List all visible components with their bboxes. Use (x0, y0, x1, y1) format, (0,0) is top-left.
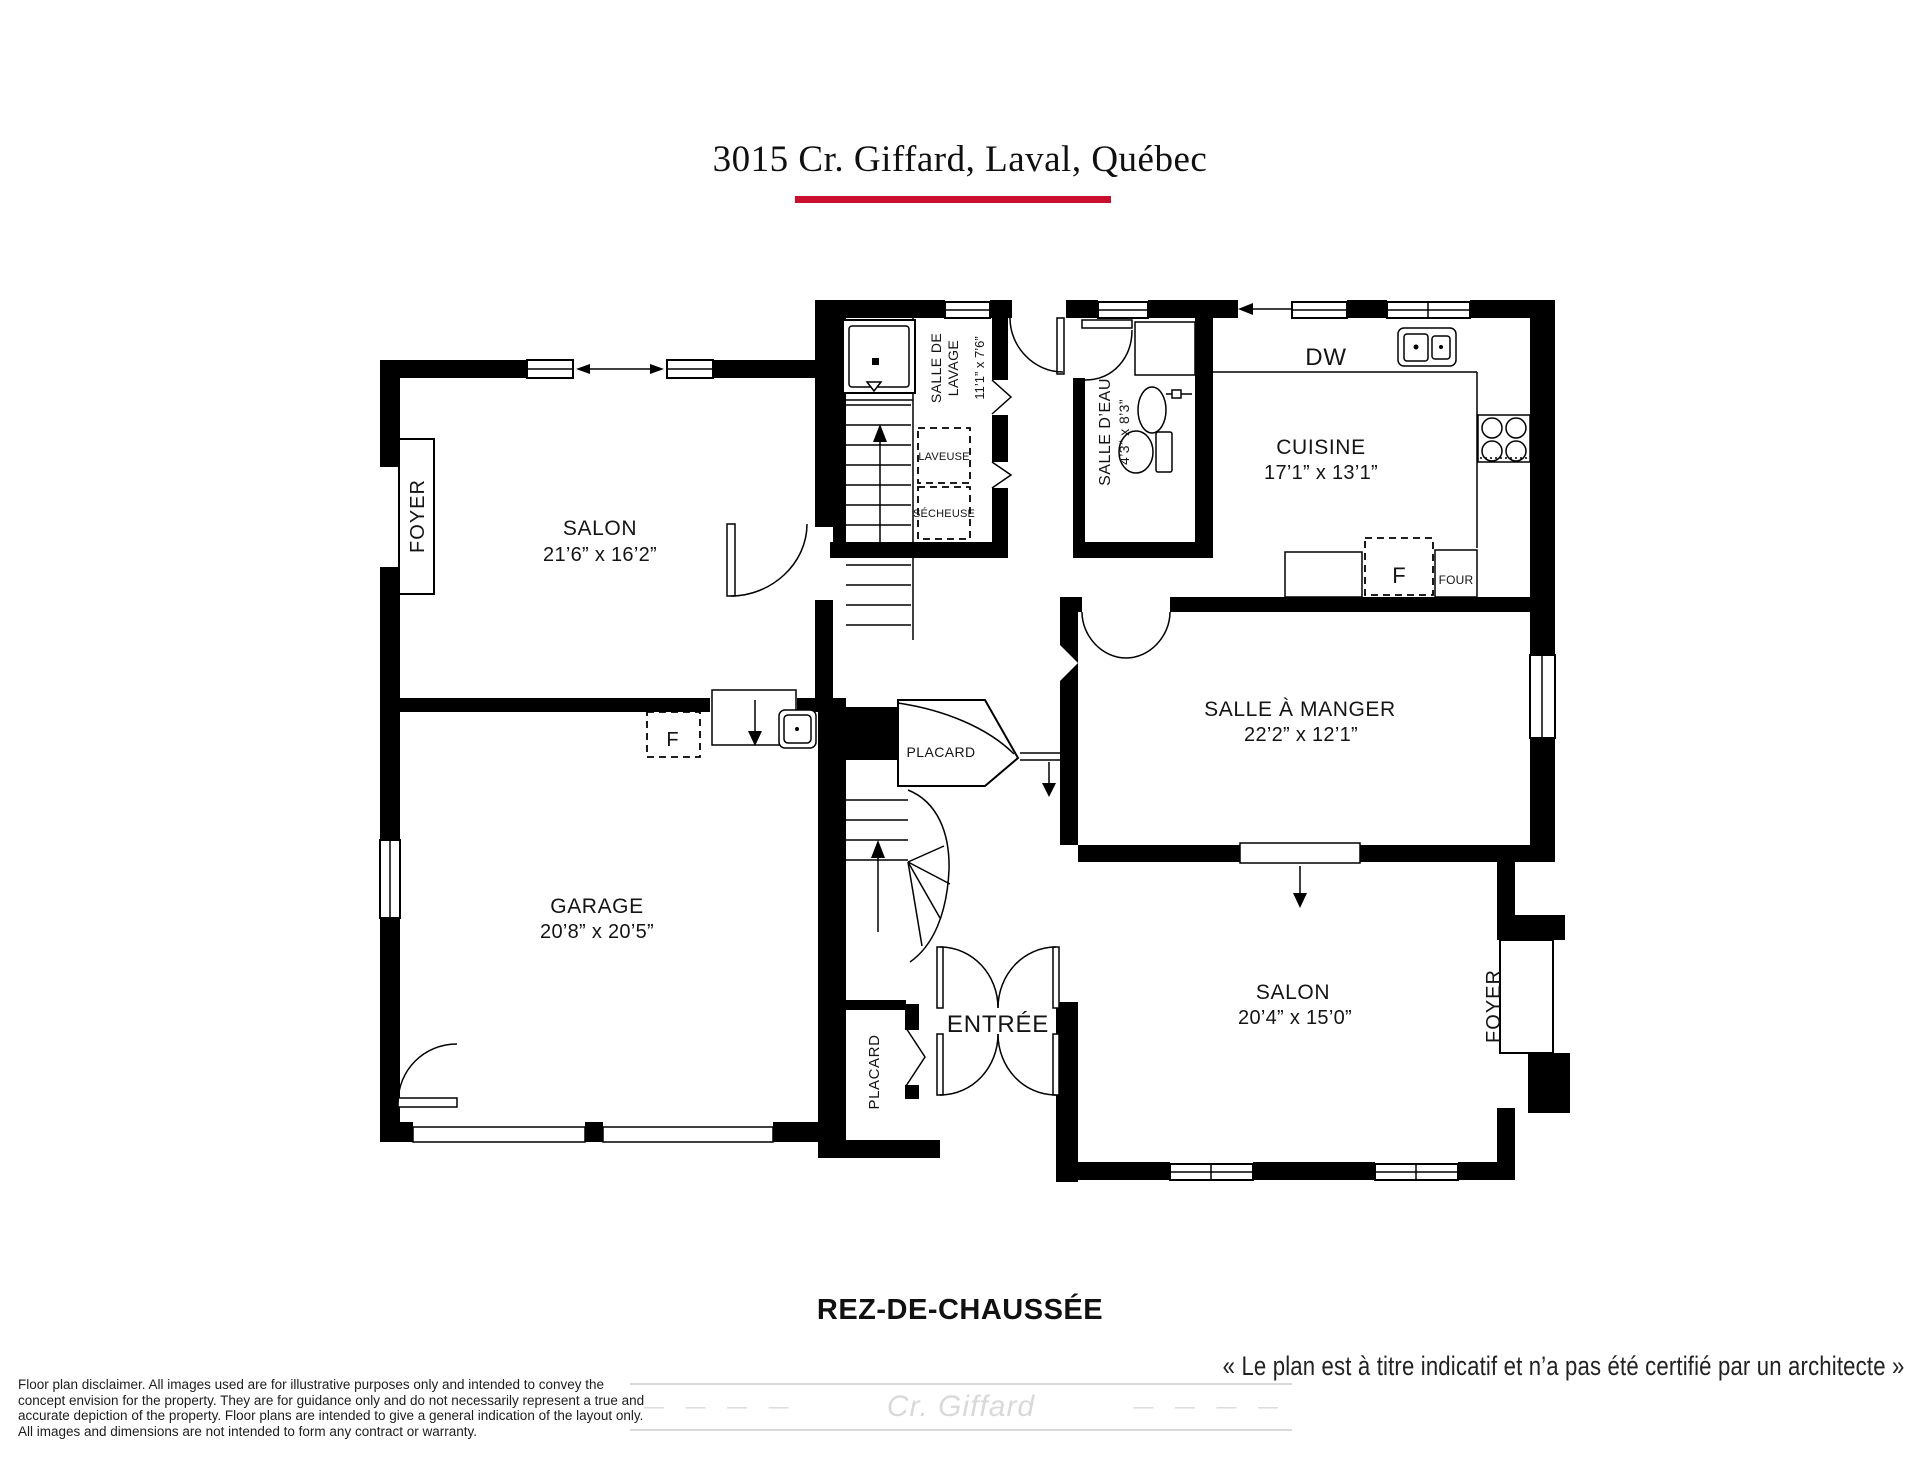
window (527, 360, 573, 378)
closet-bifold-hall (898, 700, 1018, 786)
watermark-dashes-right: — — — — (1119, 1396, 1292, 1419)
window (380, 840, 400, 918)
oven-label: FOUR (1439, 573, 1474, 587)
floor-plan-drawing: SALON 21’6” x 16’2” CUISINE 17’1” x 13’1… (0, 0, 1920, 1483)
kitchen-sink-icon (1398, 328, 1456, 366)
room-dims-salle-deau: 4’3” x 8’3” (1116, 399, 1132, 465)
disclaimer-line: accurate depiction of the property. Floo… (18, 1408, 658, 1424)
dining-salon-arrow (1293, 866, 1307, 908)
watermark-band: — — — — Cr. Giffard — — — — (630, 1383, 1292, 1431)
dryer-label: SÉCHEUSE (913, 507, 975, 520)
room-label-cuisine: CUISINE (1276, 436, 1365, 459)
watermark-text: Cr. Giffard (887, 1390, 1035, 1424)
disclaimer-line: concept envision for the property. They … (18, 1393, 658, 1409)
disclaimer-line: Floor plan disclaimer. All images used a… (18, 1377, 658, 1393)
laundry-tub-icon (779, 710, 816, 748)
room-dims-garage: 20’8” x 20’5” (540, 921, 654, 943)
room-dims-salon-haut: 21’6” x 16’2” (543, 544, 657, 566)
room-label-salon-bas: SALON (1256, 981, 1330, 1004)
floor-level-label: REZ-DE-CHAUSSÉE (0, 1294, 1920, 1327)
shower-icon (843, 320, 915, 393)
window (1387, 302, 1470, 318)
door-opening-laundry-1 (992, 380, 1011, 414)
window (1170, 1164, 1253, 1180)
door-arc-garage-side (398, 1044, 457, 1107)
french-doors-entree-front (937, 1034, 1059, 1095)
room-dims-salle-a-manger: 22’2” x 12’1” (1244, 724, 1358, 746)
fixtures (399, 320, 1553, 1053)
door-arc-salle-deau (1082, 320, 1132, 380)
dishwasher-label: DW (1305, 344, 1347, 371)
staircase-basement-icon (846, 790, 950, 962)
room-label-salon-haut: SALON (563, 517, 637, 540)
freezer-label: F (666, 729, 679, 751)
refrigerator-label: F (1392, 563, 1405, 588)
room-label-salle-a-manger: SALLE À MANGER (1204, 698, 1396, 721)
window (945, 302, 990, 318)
floor-plan-disclaimer: Floor plan disclaimer. All images used a… (18, 1377, 658, 1439)
room-label-garage: GARAGE (550, 895, 643, 918)
window (1292, 302, 1347, 318)
french-doors-entree-interior (937, 947, 1059, 1008)
stove-icon (1478, 415, 1530, 462)
closet-bifold-entree (906, 1028, 925, 1086)
room-label-foyer-droit: FOYER (1483, 969, 1505, 1043)
window (1098, 302, 1148, 318)
hall-salon-arrow (1042, 762, 1056, 797)
room-dims-cuisine: 17’1” x 13’1” (1264, 462, 1378, 484)
washer-label: LAVEUSE (918, 451, 969, 463)
vanity-sink-icon (1135, 322, 1195, 433)
disclaimer-line: All images and dimensions are not intend… (18, 1424, 658, 1440)
fireplace-right-icon (1500, 940, 1553, 1053)
window (667, 360, 713, 378)
window-span-arrow (576, 364, 664, 374)
french-doors-salle-a-manger (1082, 612, 1170, 658)
top-entry-arrow (1238, 303, 1292, 315)
room-label-salle-de-lavage-1: SALLE DE (928, 333, 944, 403)
closet-label-entree: PLACARD (866, 1034, 883, 1109)
room-dims-salon-bas: 20’4” x 15’0” (1238, 1007, 1352, 1029)
room-label-foyer-gauche: FOYER (407, 479, 429, 553)
door-arc-salon-hall (727, 524, 807, 596)
door-arc-laundry (1010, 318, 1064, 374)
passage-hall-salon (1020, 753, 1060, 760)
window (1375, 1164, 1458, 1180)
room-label-salle-deau: SALLE D’EAU (1097, 378, 1114, 486)
closet-label-hall: PLACARD (907, 744, 976, 760)
architect-disclaimer-note: « Le plan est à titre indicatif et n’a p… (1222, 1351, 1904, 1382)
passage-dining-salon (1240, 843, 1360, 863)
door-opening-laundry-2 (992, 462, 1011, 488)
window (1530, 655, 1555, 738)
room-label-salle-de-lavage-2: LAVAGE (945, 340, 961, 396)
floor-plan-page: 3015 Cr. Giffard, Laval, Québec (0, 0, 1920, 1483)
room-dims-salle-de-lavage: 11’1” x 7’6” (972, 336, 987, 399)
room-label-entree: ENTRÉE (947, 1011, 1049, 1038)
